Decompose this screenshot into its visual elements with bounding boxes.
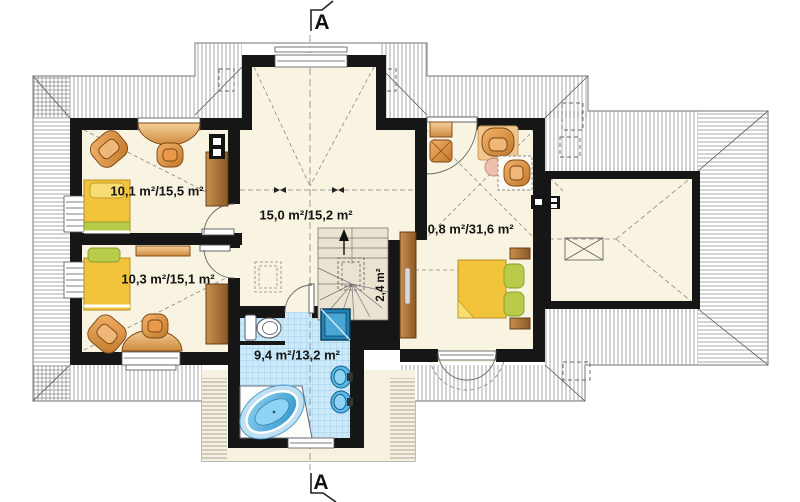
shelf xyxy=(136,246,190,256)
wardrobe xyxy=(206,284,228,344)
shower xyxy=(321,309,350,340)
garage-roof-top xyxy=(545,111,698,171)
room-label-stairs: 2,4 m² xyxy=(375,268,387,301)
chimney-flues xyxy=(531,195,560,209)
wardrobe xyxy=(206,152,228,206)
section-marker-bottom: A xyxy=(313,471,328,495)
garage-roof-bottom xyxy=(545,309,698,365)
floor-plan: 10,1 m²/15,5 m² 10,3 m²/15,1 m² 15,0 m²/… xyxy=(0,0,800,502)
room-label-top-left: 10,1 m²/15,5 m² xyxy=(110,184,203,199)
room-label-bottom-left: 10,3 m²/15,1 m² xyxy=(121,272,214,287)
room-label-hall: 15,0 m²/15,2 m² xyxy=(259,208,352,223)
bathroom-door-leaf xyxy=(309,284,314,313)
room-label-bedroom: 20,8 m²/31,6 m² xyxy=(420,222,513,237)
roof-bottom-band-left xyxy=(33,365,202,401)
garage-room-floor xyxy=(551,179,692,301)
nightstand xyxy=(430,122,452,137)
roof-bottom-band-right xyxy=(400,365,585,401)
garage-roof-right xyxy=(698,111,768,365)
room-label-bathroom: 9,4 m²/13,2 m² xyxy=(254,348,340,363)
dormer-cheek-right xyxy=(390,378,415,461)
roof-top-band-left xyxy=(33,76,195,118)
roof-left-band xyxy=(33,76,70,401)
bedroom-door-leaf xyxy=(427,117,477,122)
wardrobe xyxy=(400,232,416,338)
cabinet xyxy=(209,134,225,159)
dormer-roof-left xyxy=(195,43,242,118)
dormer-cheek-left xyxy=(202,378,227,461)
floor-plan-drawing xyxy=(0,0,800,502)
section-marker-top: A xyxy=(314,11,329,35)
dormer-roof-right xyxy=(380,43,427,118)
